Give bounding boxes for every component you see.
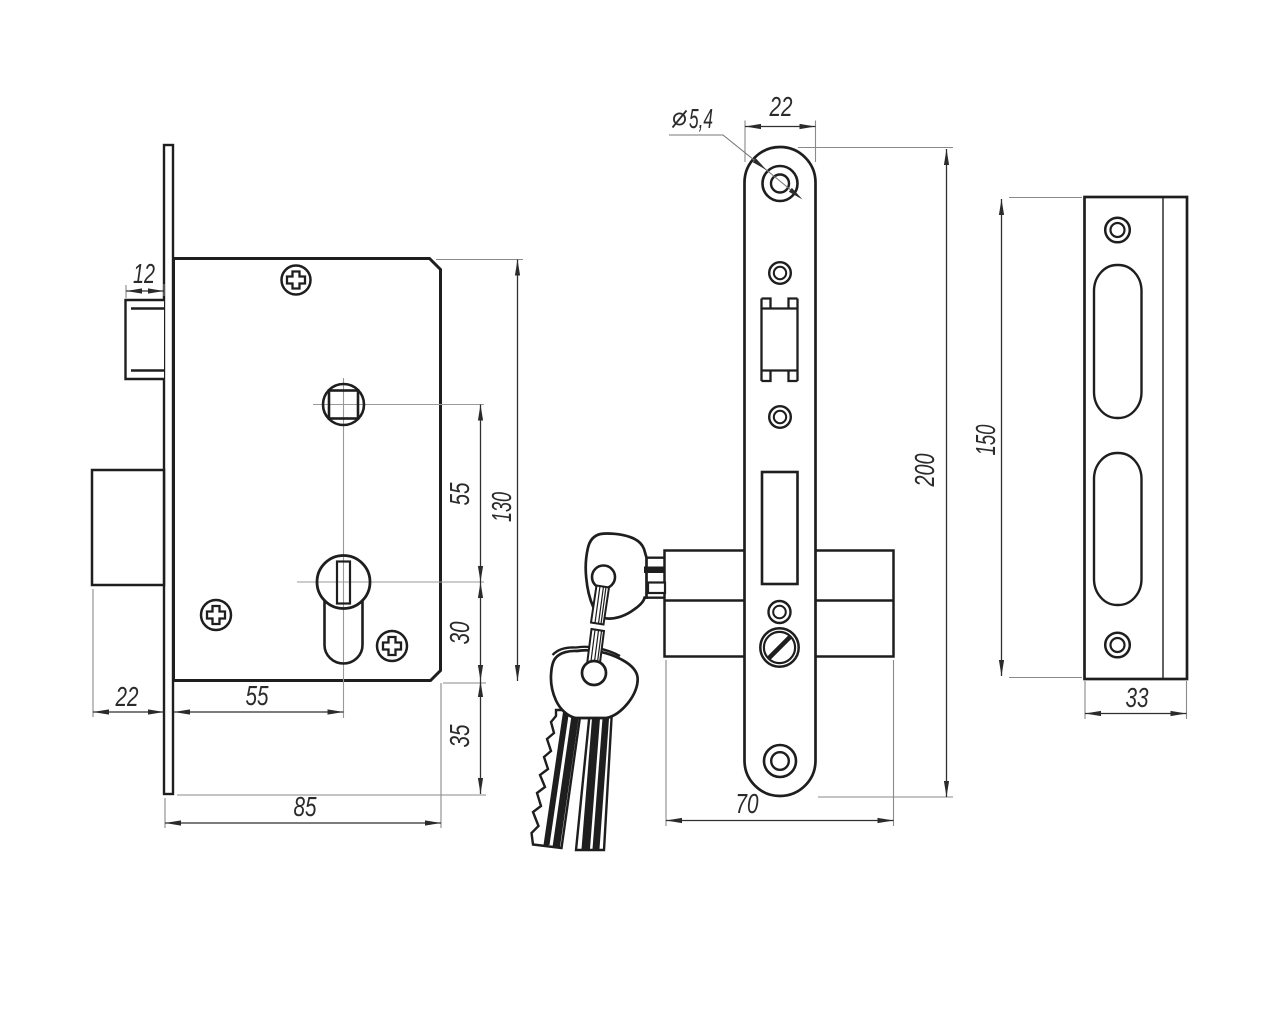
svg-text:22: 22: [115, 681, 139, 712]
svg-text:70: 70: [736, 788, 759, 819]
svg-text:55: 55: [444, 482, 475, 505]
svg-text:22: 22: [769, 91, 793, 122]
svg-text:150: 150: [970, 424, 1001, 455]
svg-text:30: 30: [444, 621, 475, 644]
svg-text:85: 85: [294, 791, 317, 822]
svg-text:130: 130: [486, 492, 517, 522]
svg-text:35: 35: [444, 724, 475, 747]
svg-text:55: 55: [246, 680, 269, 711]
svg-text:5,4: 5,4: [689, 103, 713, 134]
svg-text:12: 12: [133, 258, 155, 289]
svg-text:33: 33: [1126, 682, 1149, 713]
svg-text:200: 200: [909, 453, 940, 487]
